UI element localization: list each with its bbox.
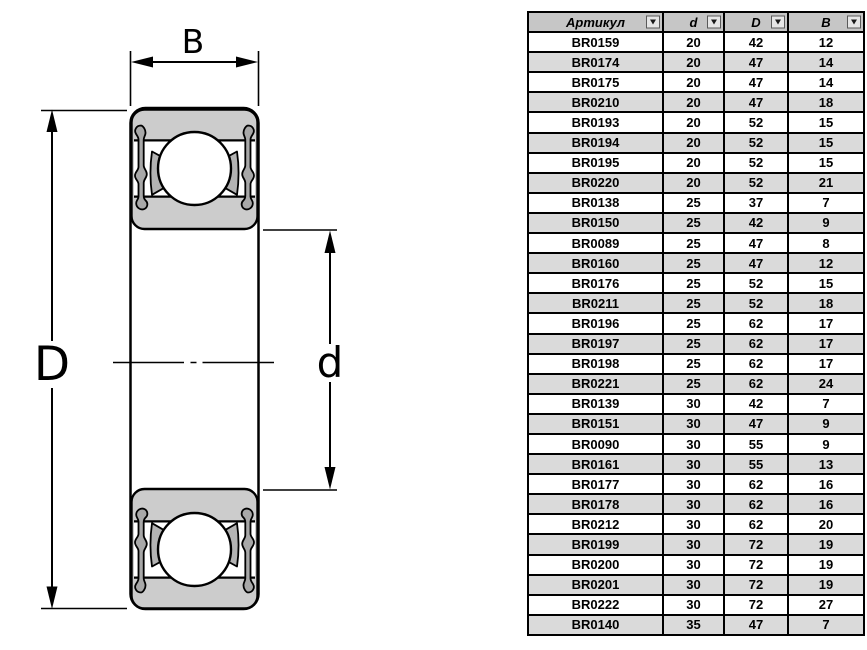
chevron-down-icon [775,20,781,25]
cell-article: BR0197 [528,334,663,354]
table-row: BR0197256217 [528,334,864,354]
cell-d: 20 [663,32,724,52]
cell-d: 30 [663,534,724,554]
cell-B: 12 [788,253,864,273]
ball [158,132,231,205]
cell-D: 72 [724,555,788,575]
table-row: BR0159204212 [528,32,864,52]
cell-D: 62 [724,494,788,514]
table-row: BR0221256224 [528,374,864,394]
cell-B: 14 [788,72,864,92]
cell-D: 72 [724,575,788,595]
cell-article: BR0175 [528,72,663,92]
cell-B: 20 [788,514,864,534]
cell-B: 7 [788,394,864,414]
cell-D: 47 [724,92,788,112]
cell-d: 30 [663,514,724,534]
cell-d: 30 [663,494,724,514]
cell-B: 18 [788,293,864,313]
cell-D: 62 [724,374,788,394]
cell-d: 25 [663,273,724,293]
column-header-article: Артикул [528,12,663,32]
cell-d: 25 [663,293,724,313]
cell-D: 42 [724,32,788,52]
cell-B: 13 [788,454,864,474]
cell-B: 9 [788,414,864,434]
arrowhead-right-icon [236,57,258,68]
cell-article: BR0220 [528,173,663,193]
cell-D: 62 [724,354,788,374]
cell-article: BR0174 [528,52,663,72]
table-row: BR0174204714 [528,52,864,72]
cell-B: 19 [788,555,864,575]
table-row: BR0201307219 [528,575,864,595]
cell-article: BR0201 [528,575,663,595]
cell-d: 30 [663,394,724,414]
cell-B: 17 [788,354,864,374]
cell-D: 62 [724,313,788,333]
table-row: BR0160254712 [528,253,864,273]
cell-D: 47 [724,72,788,92]
filter-dropdown-D[interactable] [771,16,785,29]
cell-d: 20 [663,52,724,72]
cell-D: 72 [724,595,788,615]
cell-d: 20 [663,72,724,92]
cell-D: 62 [724,514,788,534]
ring-section-top [132,110,258,230]
cell-B: 19 [788,575,864,595]
cell-d: 25 [663,354,724,374]
cell-article: BR0090 [528,434,663,454]
filter-dropdown-B[interactable] [847,16,861,29]
cell-d: 30 [663,434,724,454]
cell-D: 47 [724,52,788,72]
cell-d: 20 [663,133,724,153]
cell-B: 15 [788,112,864,132]
table-row: BR013930427 [528,394,864,414]
header-row: АртикулdDB [528,12,864,32]
cell-article: BR0211 [528,293,663,313]
cell-article: BR0221 [528,374,663,394]
cell-B: 7 [788,615,864,635]
cell-d: 25 [663,193,724,213]
cell-D: 52 [724,153,788,173]
filter-dropdown-d[interactable] [707,16,721,29]
chevron-down-icon [851,20,857,25]
column-label: Артикул [566,15,625,30]
cell-B: 9 [788,213,864,233]
table-row: BR0200307219 [528,555,864,575]
cell-article: BR0138 [528,193,663,213]
page: B D d АртикулdDB BR0159204212BR017420 [0,0,867,650]
cell-article: BR0159 [528,32,663,52]
cell-d: 25 [663,313,724,333]
cell-article: BR0161 [528,454,663,474]
table-row: BR0195205215 [528,153,864,173]
cell-article: BR0151 [528,414,663,434]
table-row: BR0198256217 [528,354,864,374]
cell-B: 15 [788,153,864,173]
column-label: d [690,15,698,30]
table-row: BR0220205221 [528,173,864,193]
cell-d: 20 [663,173,724,193]
cell-D: 62 [724,334,788,354]
arrowhead-left-icon [131,57,153,68]
table-row: BR015130479 [528,414,864,434]
cell-article: BR0139 [528,394,663,414]
table-row: BR009030559 [528,434,864,454]
table-row: BR015025429 [528,213,864,233]
cell-D: 47 [724,414,788,434]
cell-B: 18 [788,92,864,112]
table-row: BR008925478 [528,233,864,253]
table-row: BR0222307227 [528,595,864,615]
table-row: BR0212306220 [528,514,864,534]
cell-article: BR0193 [528,112,663,132]
cell-B: 9 [788,434,864,454]
arrowhead-up-icon [325,231,336,254]
cell-article: BR0176 [528,273,663,293]
cell-d: 25 [663,334,724,354]
table-row: BR0175204714 [528,72,864,92]
cell-D: 42 [724,394,788,414]
cell-d: 30 [663,414,724,434]
table-row: BR0176255215 [528,273,864,293]
cell-article: BR0212 [528,514,663,534]
table-row: BR013825377 [528,193,864,213]
cell-d: 30 [663,555,724,575]
cell-B: 27 [788,595,864,615]
cell-B: 21 [788,173,864,193]
cell-B: 14 [788,52,864,72]
dim-label-bore: d [317,338,344,387]
cell-article: BR0196 [528,313,663,333]
arrowhead-down-icon [47,587,58,610]
cell-D: 52 [724,173,788,193]
cell-article: BR0195 [528,153,663,173]
cell-B: 17 [788,313,864,333]
table-row: BR0196256217 [528,313,864,333]
cell-D: 52 [724,293,788,313]
cell-D: 37 [724,193,788,213]
cell-article: BR0140 [528,615,663,635]
cell-d: 25 [663,253,724,273]
table-row: BR0211255218 [528,293,864,313]
filter-dropdown-article[interactable] [646,16,660,29]
cell-D: 55 [724,454,788,474]
cell-d: 25 [663,374,724,394]
arrowhead-down-icon [325,467,336,490]
cell-B: 24 [788,374,864,394]
dim-label-outer-diameter: D [34,337,70,392]
cell-article: BR0178 [528,494,663,514]
cell-D: 52 [724,133,788,153]
cell-article: BR0200 [528,555,663,575]
column-label: B [821,15,830,30]
cell-D: 52 [724,273,788,293]
table-row: BR0193205215 [528,112,864,132]
cell-d: 30 [663,474,724,494]
cell-d: 20 [663,112,724,132]
cell-D: 52 [724,112,788,132]
cell-article: BR0199 [528,534,663,554]
table-row: BR0210204718 [528,92,864,112]
cell-B: 16 [788,474,864,494]
cell-B: 12 [788,32,864,52]
cell-D: 47 [724,615,788,635]
ring-section-bottom [132,489,258,609]
cell-D: 47 [724,253,788,273]
bearing-cross-section-diagram: B D d [0,0,520,650]
cell-article: BR0177 [528,474,663,494]
cell-D: 42 [724,213,788,233]
table-row: BR0177306216 [528,474,864,494]
cell-d: 30 [663,575,724,595]
column-header-B: B [788,12,864,32]
table-row: BR0194205215 [528,133,864,153]
cell-article: BR0210 [528,92,663,112]
arrowhead-up-icon [47,110,58,133]
cell-d: 30 [663,595,724,615]
cell-B: 15 [788,273,864,293]
bearing-size-table-wrap: АртикулdDB BR0159204212BR0174204714BR017… [527,11,865,636]
cell-d: 20 [663,92,724,112]
table-row: BR0199307219 [528,534,864,554]
cell-article: BR0222 [528,595,663,615]
table-row: BR0161305513 [528,454,864,474]
bearing-size-table: АртикулdDB BR0159204212BR0174204714BR017… [527,11,865,636]
column-header-d: d [663,12,724,32]
cell-D: 62 [724,474,788,494]
table-row: BR0178306216 [528,494,864,514]
cell-B: 15 [788,133,864,153]
cell-B: 19 [788,534,864,554]
cell-B: 7 [788,193,864,213]
cell-D: 47 [724,233,788,253]
cell-d: 25 [663,213,724,233]
cell-D: 55 [724,434,788,454]
dim-label-width: B [182,22,205,61]
cell-d: 30 [663,454,724,474]
cell-B: 17 [788,334,864,354]
table-row: BR014035477 [528,615,864,635]
column-label: D [751,15,760,30]
cell-d: 20 [663,153,724,173]
cell-article: BR0198 [528,354,663,374]
chevron-down-icon [650,20,656,25]
column-header-D: D [724,12,788,32]
cell-B: 8 [788,233,864,253]
cell-article: BR0160 [528,253,663,273]
cell-article: BR0089 [528,233,663,253]
cell-D: 72 [724,534,788,554]
chevron-down-icon [711,20,717,25]
cell-article: BR0194 [528,133,663,153]
cell-d: 35 [663,615,724,635]
cell-d: 25 [663,233,724,253]
cell-B: 16 [788,494,864,514]
cell-article: BR0150 [528,213,663,233]
